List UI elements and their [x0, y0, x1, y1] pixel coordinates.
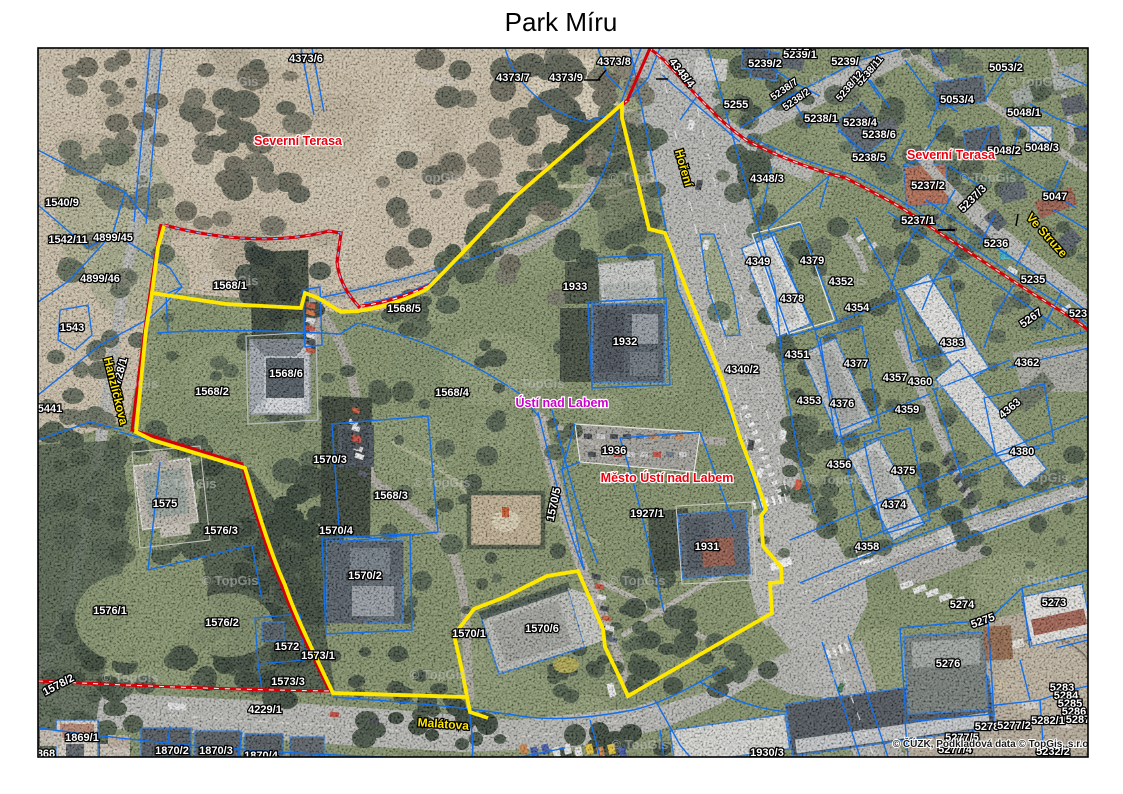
- svg-text:1927/1: 1927/1: [630, 508, 664, 520]
- svg-text:Severní Terasa: Severní Terasa: [907, 148, 996, 162]
- svg-text:© TopGis: © TopGis: [608, 273, 665, 288]
- svg-text:1933: 1933: [563, 281, 587, 293]
- svg-text:© TopGis: © TopGis: [807, 472, 864, 487]
- svg-text:4362: 4362: [1015, 357, 1039, 369]
- svg-text:1570/4: 1570/4: [319, 525, 354, 537]
- svg-text:© TopGis: © TopGis: [608, 573, 665, 588]
- svg-text:523: 523: [1069, 308, 1087, 320]
- svg-text:5238/4: 5238/4: [843, 117, 878, 129]
- svg-text:1573/3: 1573/3: [271, 676, 305, 688]
- svg-text:4353: 4353: [797, 395, 821, 407]
- svg-text:1542/11: 1542/11: [48, 234, 87, 246]
- svg-text:1568/4: 1568/4: [435, 387, 470, 399]
- svg-text:5277/2: 5277/2: [997, 720, 1031, 732]
- svg-text:4373/9: 4373/9: [549, 72, 583, 84]
- svg-text:© TopGis: © TopGis: [608, 170, 665, 185]
- svg-text:1869/1: 1869/1: [65, 732, 99, 744]
- svg-text:4352: 4352: [829, 276, 853, 288]
- svg-text:4354: 4354: [845, 302, 870, 314]
- svg-text:1543: 1543: [60, 322, 84, 334]
- svg-text:5441: 5441: [38, 403, 62, 415]
- svg-text:1568/1: 1568/1: [213, 280, 247, 292]
- svg-text:4358: 4358: [855, 541, 879, 553]
- svg-text:1870/3: 1870/3: [199, 745, 233, 757]
- svg-text:5255: 5255: [724, 99, 748, 111]
- svg-text:4340/2: 4340/2: [725, 364, 759, 376]
- svg-text:© ČÚZK, Podkladová data © TopG: © ČÚZK, Podkladová data © TopGis, s.r.o.: [893, 737, 1092, 750]
- svg-text:© TopGis: © TopGis: [1006, 74, 1063, 89]
- svg-text:4379: 4379: [800, 255, 824, 267]
- svg-text:5047: 5047: [1043, 191, 1067, 203]
- svg-text:Město Ústí nad Labem: Město Ústí nad Labem: [601, 470, 734, 485]
- svg-text:1568/5: 1568/5: [387, 303, 421, 315]
- svg-text:1568/6: 1568/6: [269, 368, 303, 380]
- svg-text:4380: 4380: [1010, 446, 1034, 458]
- svg-text:1870/2: 1870/2: [155, 745, 189, 757]
- svg-text:1576/3: 1576/3: [204, 525, 238, 537]
- svg-text:5237/2: 5237/2: [911, 180, 945, 192]
- svg-text:5048/1: 5048/1: [1007, 107, 1041, 119]
- svg-text:1575: 1575: [153, 498, 177, 510]
- svg-text:5048/3: 5048/3: [1025, 142, 1059, 154]
- svg-text:© TopGis: © TopGis: [1011, 572, 1068, 587]
- svg-text:5282/1: 5282/1: [1031, 715, 1065, 727]
- svg-text:4373/6: 4373/6: [289, 53, 323, 65]
- svg-text:1568/3: 1568/3: [374, 490, 408, 502]
- svg-text:1576/2: 1576/2: [205, 617, 239, 629]
- svg-text:4356: 4356: [827, 459, 851, 471]
- svg-text:© TopGis: © TopGis: [404, 72, 461, 87]
- svg-text:1570/6: 1570/6: [525, 623, 559, 635]
- svg-text:© TopGis: © TopGis: [959, 170, 1016, 185]
- svg-text:1570/2: 1570/2: [348, 570, 382, 582]
- svg-text:1570/3: 1570/3: [313, 454, 347, 466]
- svg-text:© TopGis: © TopGis: [409, 667, 466, 682]
- svg-text:5238/5: 5238/5: [852, 152, 886, 164]
- svg-text:4376: 4376: [830, 398, 854, 410]
- svg-text:5238/1: 5238/1: [804, 113, 838, 125]
- svg-text:© TopGis: © TopGis: [807, 669, 864, 684]
- svg-text:4373/7: 4373/7: [496, 72, 530, 84]
- svg-text:5273: 5273: [1042, 597, 1066, 609]
- svg-text:4349: 4349: [746, 256, 770, 268]
- svg-text:1932: 1932: [613, 336, 637, 348]
- svg-text:© TopGis: © TopGis: [611, 737, 668, 752]
- svg-text:Severní Terasa: Severní Terasa: [254, 134, 343, 148]
- svg-text:4899/46: 4899/46: [80, 273, 120, 285]
- svg-text:5239/2: 5239/2: [748, 58, 782, 70]
- svg-text:5237/1: 5237/1: [901, 215, 935, 227]
- svg-text:1576/1: 1576/1: [93, 605, 127, 617]
- svg-text:© TopGis: © TopGis: [201, 74, 258, 89]
- svg-text:© TopGis: © TopGis: [1011, 470, 1068, 485]
- svg-text:1936: 1936: [602, 445, 626, 457]
- svg-text:Ústí nad Labem: Ústí nad Labem: [515, 395, 608, 410]
- svg-text:© TopGis: © TopGis: [201, 573, 258, 588]
- svg-text:5276: 5276: [936, 658, 960, 670]
- svg-text:© TopGis: © TopGis: [101, 670, 158, 685]
- svg-text:1573/1: 1573/1: [301, 650, 335, 662]
- svg-text:4348/3: 4348/3: [750, 173, 784, 185]
- svg-text:4373/8: 4373/8: [597, 56, 631, 68]
- svg-text:4375: 4375: [891, 465, 915, 477]
- svg-text:4899/45: 4899/45: [93, 232, 133, 244]
- svg-text:1572: 1572: [275, 641, 299, 653]
- svg-text:© TopGis: © TopGis: [404, 170, 461, 185]
- svg-text:5287: 5287: [1066, 714, 1090, 726]
- svg-text:1570/1: 1570/1: [452, 628, 486, 640]
- svg-text:5236: 5236: [984, 238, 1008, 250]
- svg-text:4359: 4359: [895, 404, 919, 416]
- svg-text:5238/6: 5238/6: [862, 129, 896, 141]
- svg-text:4378: 4378: [780, 293, 804, 305]
- svg-text:Park Míru: Park Míru: [505, 7, 618, 37]
- svg-text:1540/9: 1540/9: [45, 197, 79, 209]
- svg-text:© TopGis: © TopGis: [507, 376, 564, 391]
- svg-text:4360: 4360: [908, 376, 932, 388]
- svg-text:1931: 1931: [695, 541, 719, 553]
- svg-text:5274: 5274: [950, 599, 975, 611]
- svg-text:5053/2: 5053/2: [989, 62, 1023, 74]
- svg-text:4377: 4377: [844, 358, 868, 370]
- svg-text:4357: 4357: [883, 372, 907, 384]
- svg-text:4229/1: 4229/1: [248, 704, 282, 716]
- svg-text:© TopGis: © TopGis: [101, 170, 158, 185]
- svg-text:4374: 4374: [882, 499, 907, 511]
- svg-text:4351: 4351: [785, 349, 809, 361]
- svg-text:5239/: 5239/: [831, 56, 859, 68]
- svg-text:© TopGis: © TopGis: [413, 475, 470, 490]
- svg-text:5053/4: 5053/4: [940, 94, 975, 106]
- svg-text:© TopGis: © TopGis: [159, 476, 216, 491]
- svg-text:4383: 4383: [940, 337, 964, 349]
- svg-text:5235: 5235: [1021, 274, 1045, 286]
- svg-text:1568/2: 1568/2: [195, 386, 229, 398]
